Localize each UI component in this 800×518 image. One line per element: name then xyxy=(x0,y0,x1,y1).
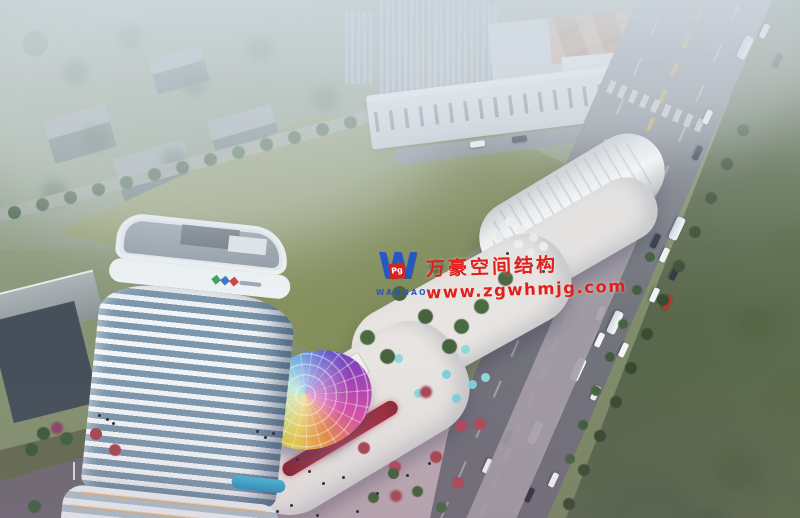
watermark-badge-text: Pg xyxy=(391,265,403,275)
teal-umbrellas xyxy=(394,354,403,363)
red-trees xyxy=(90,428,102,440)
pedestrians xyxy=(256,430,259,433)
watermark-logo-badge: Pg xyxy=(388,262,406,280)
architectural-rendering: 万达广场 xyxy=(0,0,800,518)
roadside-trees-west xyxy=(645,252,655,262)
white-umbrellas xyxy=(505,217,514,226)
street-trees-small xyxy=(388,468,399,479)
tower-building xyxy=(76,211,304,518)
tower-balcony-bands xyxy=(80,280,297,511)
watermark-url: www.zgwhmjg.com xyxy=(426,277,627,302)
bottomleft-trees xyxy=(25,443,38,456)
watermark-logo: W Pg WANHAO xyxy=(376,252,424,304)
watermark-text: 万豪空间结构 www.zgwhmjg.com xyxy=(426,256,626,299)
tower-logo-text-streak xyxy=(239,281,261,287)
street-lamp xyxy=(73,462,75,480)
watermark: W Pg WANHAO 万豪空间结构 www.zgwhmjg.com xyxy=(376,252,636,316)
watermark-title: 万豪空间结构 xyxy=(426,253,627,281)
tower-logo-mark xyxy=(229,277,239,287)
park-tree-blobs xyxy=(750,150,792,180)
watermark-logo-name: WANHAO xyxy=(376,288,428,297)
